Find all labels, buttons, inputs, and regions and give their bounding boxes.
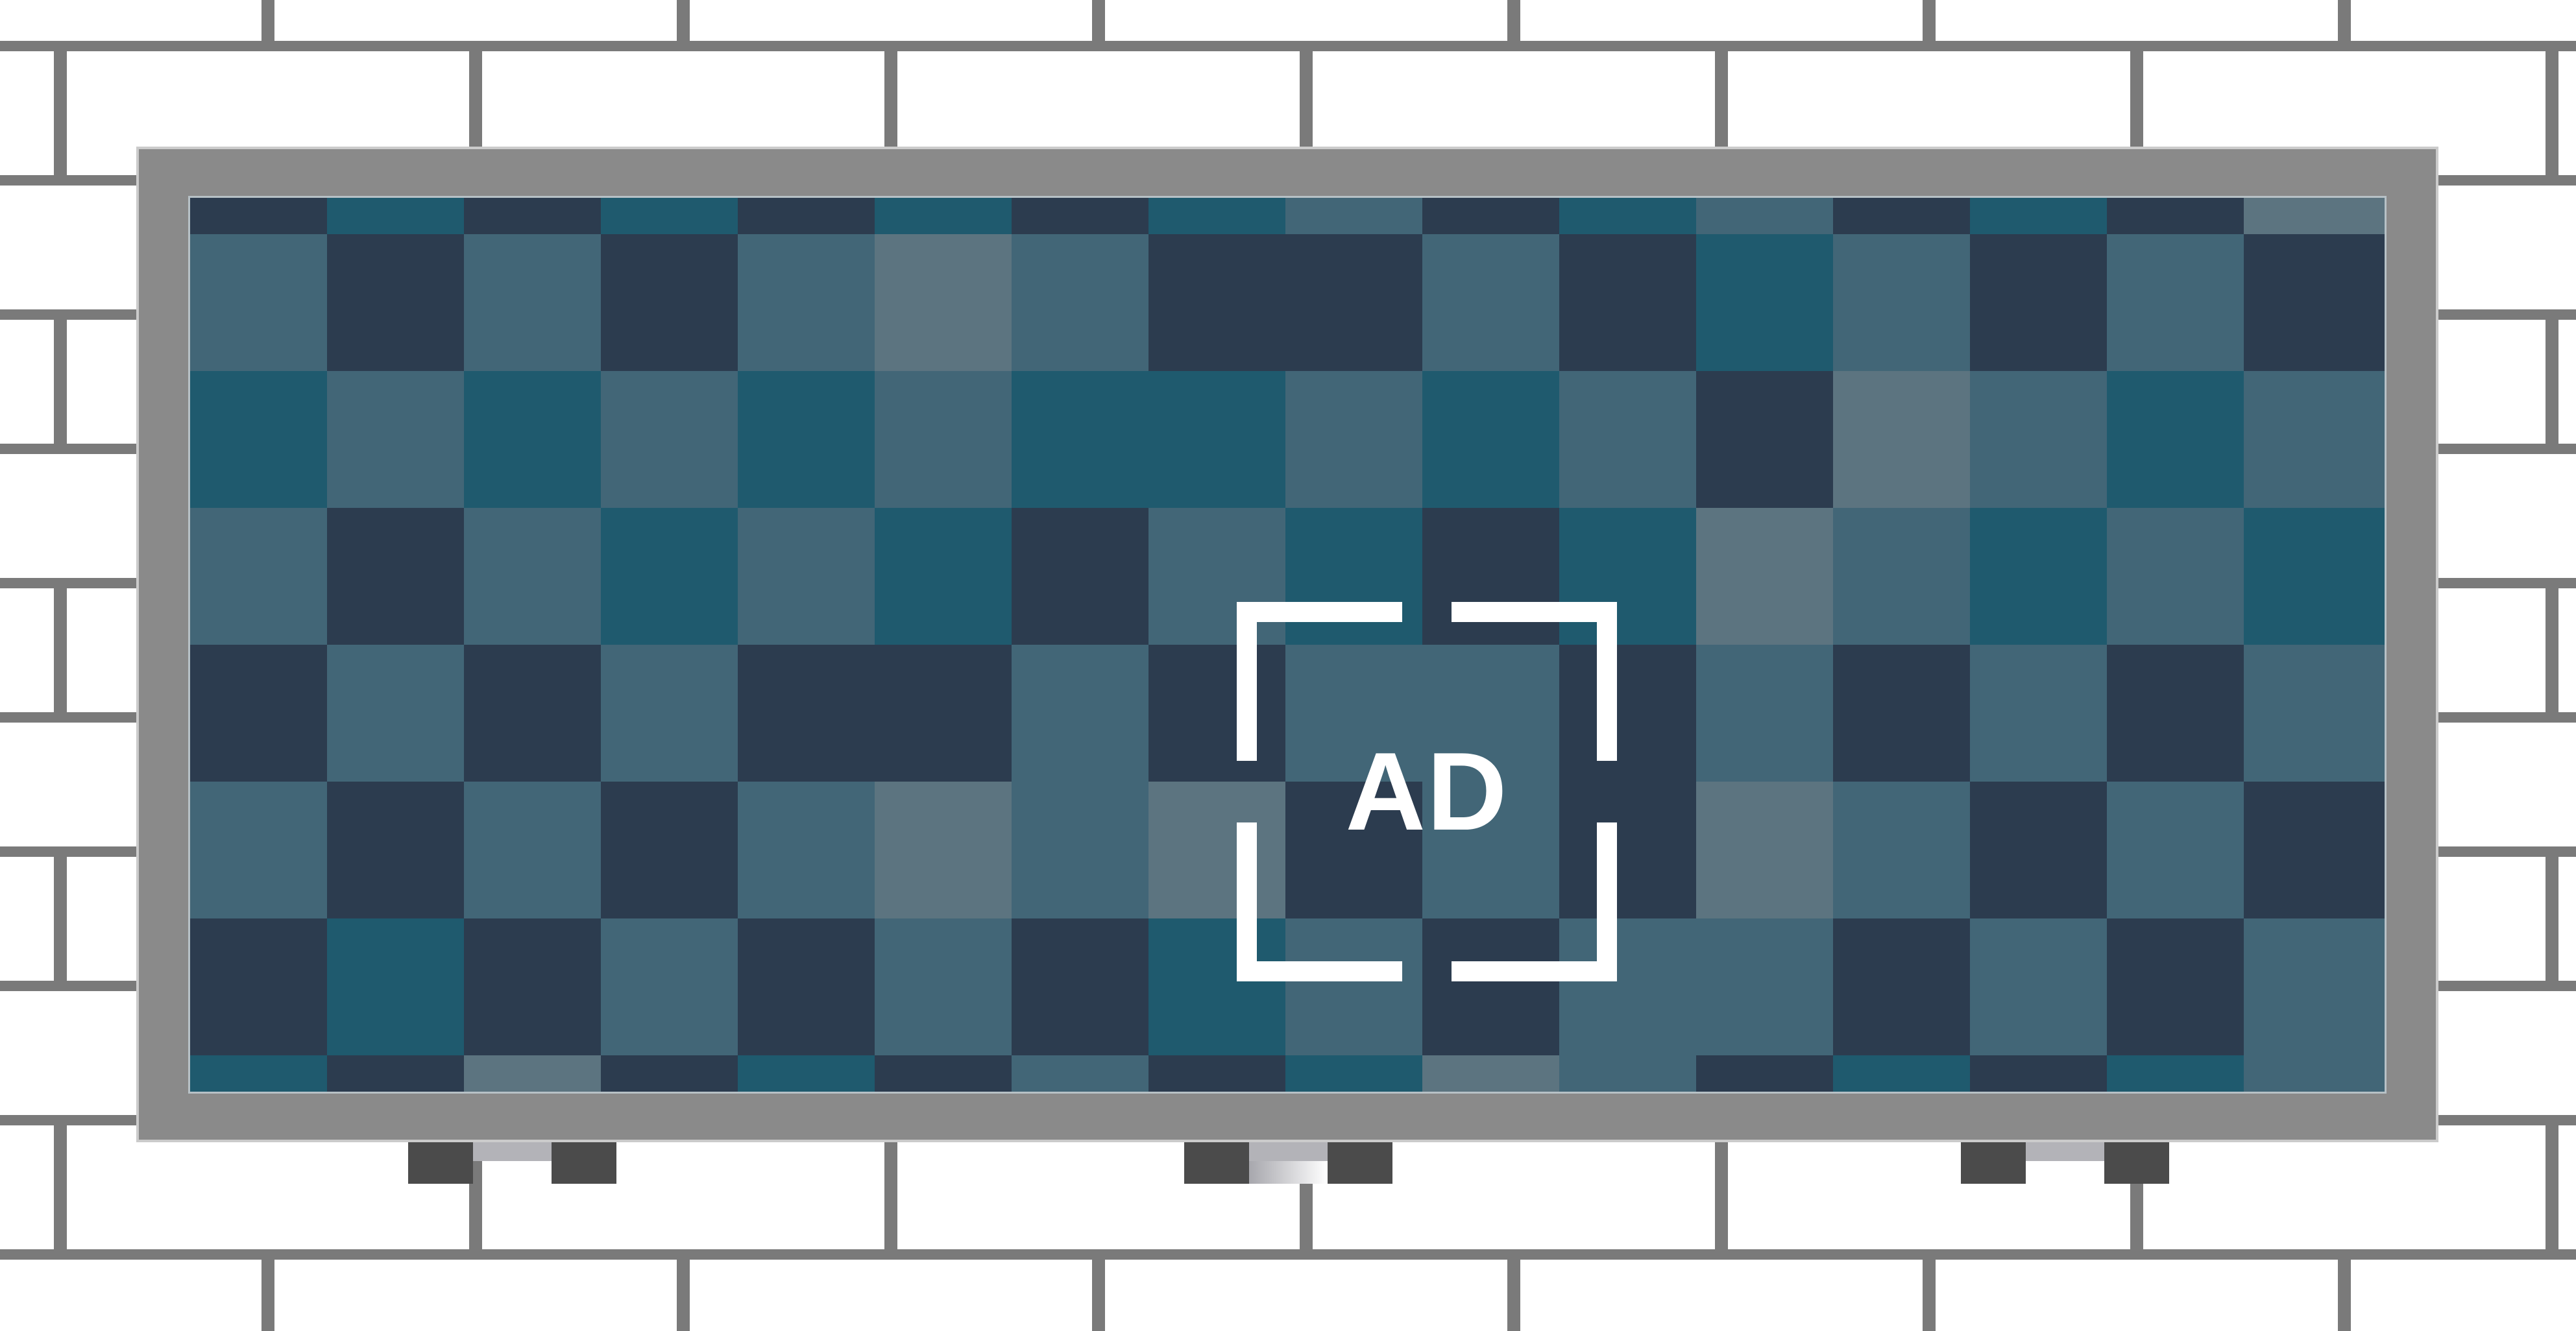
mortar-line [0,1249,2576,1260]
checker-cell [601,1055,738,1092]
checker-cell [1148,1055,1285,1092]
checker-cell [2244,508,2385,645]
mortar-line [2338,0,2351,41]
foot-block [408,1140,473,1184]
checker-cell [875,508,1012,645]
checker-cell [1833,918,1970,1055]
checker-cell [190,782,327,918]
checker-cell [1696,645,1833,782]
checker-cell [327,1055,464,1092]
checker-cell [464,508,601,645]
checker-cell [2244,782,2385,918]
checker-cell [190,645,327,782]
checker-cell [327,198,464,234]
checker-cell [327,782,464,918]
checker-cell [1148,371,1285,508]
mortar-line [54,320,67,444]
checker-cell [875,234,1012,371]
checker-cell [464,1055,601,1092]
checker-cell [2244,234,2385,371]
mortar-line [0,41,2576,51]
checker-cell [601,371,738,508]
checker-cell [1559,234,1696,371]
checker-cell [738,371,875,508]
foot-block [2104,1140,2169,1184]
foot-plate-silver [1249,1161,1328,1184]
mortar-line [261,1260,274,1331]
checker-cell [2107,371,2244,508]
checker-cell [2107,645,2244,782]
checker-cell [738,198,875,234]
checker-cell [1970,508,2107,645]
checker-cell [738,918,875,1055]
checker-cell [1696,1055,1833,1092]
checker-cell [1970,645,2107,782]
checker-cell [1422,371,1559,508]
checker-cell [1696,782,1833,918]
checker-cell [190,918,327,1055]
foot-plate [473,1140,552,1161]
checker-cell [1970,234,2107,371]
checker-cell [2244,198,2385,234]
checker-cell [1012,234,1148,371]
checker-cell [1970,371,2107,508]
checker-cell [738,234,875,371]
checker-cell [327,918,464,1055]
mortar-line [2338,1260,2351,1331]
checker-cell [2244,918,2385,1055]
checker-cell [2107,782,2244,918]
checker-cell [738,1055,875,1092]
ad-frame-corner-top-left-icon [1237,602,1402,761]
checker-cell [1422,198,1559,234]
checker-cell [738,782,875,918]
checker-cell [1696,234,1833,371]
mortar-line [54,1125,67,1249]
foot-plate [1249,1140,1328,1161]
checker-cell [1148,234,1285,371]
mortar-line [2546,588,2558,712]
checker-cell [1833,645,1970,782]
checker-cell [1148,198,1285,234]
checker-cell [1696,198,1833,234]
checker-cell [1422,234,1559,371]
checker-cell [464,645,601,782]
checker-cell [601,198,738,234]
ad-frame-corner-bottom-left-icon [1237,822,1402,981]
checker-cell [2107,234,2244,371]
checker-cell [1970,918,2107,1055]
checker-cell [1012,198,1148,234]
checker-cell [875,198,1012,234]
checker-cell [2107,918,2244,1055]
checker-cell [327,508,464,645]
checker-cell [601,782,738,918]
mortar-line [1923,0,1936,41]
checker-cell [738,508,875,645]
checker-cell [1285,1055,1422,1092]
mortar-line [884,1125,897,1249]
checker-cell [601,508,738,645]
checker-cell [875,782,1012,918]
checker-cell [1422,1055,1559,1092]
mortar-line [2546,857,2558,981]
mortar-line [261,0,274,41]
checker-cell [190,234,327,371]
checker-cell [1012,371,1148,508]
checker-cell [1970,198,2107,234]
mortar-line [54,588,67,712]
checker-cell [1833,1055,1970,1092]
ad-frame-corner-top-right-icon [1452,602,1617,761]
foot-block [1961,1140,2026,1184]
mortar-line [1092,0,1105,41]
checker-cell [1559,371,1696,508]
checker-cell [464,234,601,371]
foot-block [552,1140,616,1184]
checker-cell [1012,1055,1148,1092]
mortar-line [1092,1260,1105,1331]
checker-cell [327,645,464,782]
checker-cell [2107,198,2244,234]
checker-cell [1696,918,1833,1055]
checker-cell [190,1055,327,1092]
checker-cell [2107,1055,2244,1092]
mortar-line [2546,320,2558,444]
checker-cell [1285,371,1422,508]
mortar-line [54,51,67,175]
checker-cell [1285,234,1422,371]
checker-cell [2244,371,2385,508]
checker-cell [464,371,601,508]
mortar-line [54,857,67,981]
mortar-line [677,1260,690,1331]
checker-cell [1012,918,1148,1055]
checker-cell [464,918,601,1055]
checker-cell [1559,1055,1696,1092]
checker-cell [190,508,327,645]
checker-cell [875,918,1012,1055]
checker-cell [1696,508,1833,645]
checker-cell [1012,782,1148,918]
checker-cell [875,645,1012,782]
ad-placeholder[interactable]: AD [1237,602,1617,981]
checker-cell [738,645,875,782]
checker-cell [464,782,601,918]
mortar-line [1507,1260,1520,1331]
checker-cell [1970,782,2107,918]
billboard: AD [139,149,2436,1140]
checker-cell [2244,1055,2385,1092]
checker-cell [875,1055,1012,1092]
foot-block [1328,1140,1392,1184]
mortar-line [1923,1260,1936,1331]
checker-cell [1833,234,1970,371]
checker-cell [1970,1055,2107,1092]
checker-cell [2244,645,2385,782]
mortar-line [677,0,690,41]
mortar-line [2546,1125,2558,1249]
checker-cell [875,371,1012,508]
checker-cell [1833,371,1970,508]
foot-plate [2026,1140,2104,1161]
checker-cell [1012,508,1148,645]
checker-cell [464,198,601,234]
checker-cell [2107,508,2244,645]
checker-cell [601,234,738,371]
mortar-line [1507,0,1520,41]
mortar-line [1715,1125,1728,1249]
checker-cell [1696,371,1833,508]
checker-cell [327,234,464,371]
checker-cell [1559,198,1696,234]
checker-cell [327,371,464,508]
checker-cell [1285,198,1422,234]
checker-cell [190,198,327,234]
mortar-line [2546,51,2558,175]
checker-cell [601,918,738,1055]
checker-cell [1833,198,1970,234]
checker-cell [1012,645,1148,782]
checker-cell [601,645,738,782]
ad-frame-corner-bottom-right-icon [1452,822,1617,981]
checker-cell [1833,782,1970,918]
checker-cell [1833,508,1970,645]
foot-block [1184,1140,1249,1184]
checker-cell [190,371,327,508]
